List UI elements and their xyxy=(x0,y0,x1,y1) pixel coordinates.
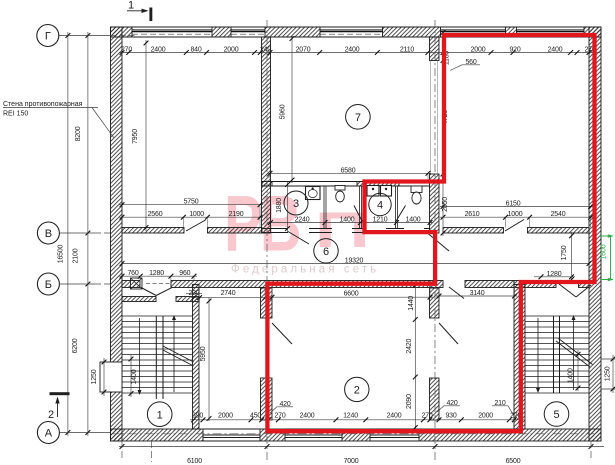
svg-text:2400: 2400 xyxy=(151,47,166,54)
svg-text:2090: 2090 xyxy=(406,394,413,409)
svg-text:2400: 2400 xyxy=(387,413,402,420)
svg-text:2100: 2100 xyxy=(72,248,79,263)
svg-text:560: 560 xyxy=(465,59,476,66)
svg-text:А: А xyxy=(45,428,53,440)
svg-text:2190: 2190 xyxy=(229,211,244,218)
svg-text:1280: 1280 xyxy=(149,270,164,277)
svg-text:2000: 2000 xyxy=(224,47,239,54)
svg-text:5960: 5960 xyxy=(280,104,287,119)
svg-text:3140: 3140 xyxy=(470,290,485,297)
svg-text:2110: 2110 xyxy=(400,47,415,54)
svg-text:2560: 2560 xyxy=(148,211,163,218)
svg-text:7000: 7000 xyxy=(344,458,359,465)
svg-text:2000: 2000 xyxy=(471,47,486,54)
svg-text:5: 5 xyxy=(553,409,559,421)
svg-text:2610: 2610 xyxy=(465,211,480,218)
svg-text:5950: 5950 xyxy=(200,346,207,361)
svg-text:960: 960 xyxy=(179,270,190,277)
svg-text:2000: 2000 xyxy=(478,413,493,420)
svg-text:450: 450 xyxy=(250,413,261,420)
svg-text:4: 4 xyxy=(377,200,383,212)
svg-text:2400: 2400 xyxy=(345,47,360,54)
svg-text:1000: 1000 xyxy=(508,211,523,218)
svg-text:В: В xyxy=(45,228,52,240)
svg-text:Г: Г xyxy=(45,31,51,43)
svg-text:1440: 1440 xyxy=(408,296,415,311)
svg-text:1250: 1250 xyxy=(91,369,98,384)
svg-text:1250: 1250 xyxy=(605,366,612,381)
svg-text:6200: 6200 xyxy=(72,338,79,353)
svg-text:7: 7 xyxy=(355,112,361,124)
svg-text:19320: 19320 xyxy=(345,258,364,265)
svg-text:8200: 8200 xyxy=(75,126,82,141)
svg-text:420: 420 xyxy=(279,401,290,408)
svg-text:2050: 2050 xyxy=(442,197,449,212)
svg-text:REI 150: REI 150 xyxy=(3,111,28,118)
svg-text:230: 230 xyxy=(188,290,199,297)
svg-text:1280: 1280 xyxy=(547,271,562,278)
svg-text:Федеральная сеть: Федеральная сеть xyxy=(231,264,379,276)
svg-text:240: 240 xyxy=(260,47,271,54)
svg-text:Б: Б xyxy=(45,279,52,291)
svg-text:Стена противопожарная: Стена противопожарная xyxy=(3,101,83,108)
svg-text:930: 930 xyxy=(445,413,456,420)
svg-text:1400: 1400 xyxy=(131,369,138,384)
svg-text:920: 920 xyxy=(509,47,520,54)
svg-text:1400: 1400 xyxy=(340,217,355,224)
svg-text:6500: 6500 xyxy=(506,458,521,465)
svg-text:1400: 1400 xyxy=(567,368,574,383)
svg-text:270: 270 xyxy=(274,413,285,420)
svg-text:5750: 5750 xyxy=(184,199,199,206)
svg-text:2: 2 xyxy=(48,409,54,421)
svg-text:1750: 1750 xyxy=(561,245,568,260)
svg-text:2740: 2740 xyxy=(221,290,236,297)
svg-text:420: 420 xyxy=(446,400,457,407)
svg-text:6: 6 xyxy=(323,246,329,258)
svg-text:6150: 6150 xyxy=(506,201,521,208)
svg-text:2: 2 xyxy=(354,384,360,396)
svg-text:1210: 1210 xyxy=(373,217,388,224)
svg-text:1: 1 xyxy=(157,409,163,421)
svg-text:1400: 1400 xyxy=(406,217,421,224)
svg-text:2240: 2240 xyxy=(295,217,310,224)
svg-text:3: 3 xyxy=(293,198,299,210)
svg-text:1600: 1600 xyxy=(601,244,608,259)
svg-text:1880: 1880 xyxy=(276,198,283,213)
svg-text:270: 270 xyxy=(421,413,432,420)
svg-text:210: 210 xyxy=(494,400,505,407)
svg-text:760: 760 xyxy=(127,270,138,277)
svg-text:1: 1 xyxy=(128,0,134,12)
svg-text:7950: 7950 xyxy=(132,129,139,144)
svg-text:6100: 6100 xyxy=(187,458,202,465)
svg-text:2420: 2420 xyxy=(406,339,413,354)
svg-text:2000: 2000 xyxy=(218,413,233,420)
svg-text:6580: 6580 xyxy=(341,167,356,174)
svg-text:2070: 2070 xyxy=(296,47,311,54)
svg-text:6600: 6600 xyxy=(344,291,359,298)
svg-text:390: 390 xyxy=(192,413,203,420)
svg-text:16500: 16500 xyxy=(58,244,65,263)
svg-text:2540: 2540 xyxy=(551,211,566,218)
svg-text:1240: 1240 xyxy=(343,413,358,420)
svg-text:840: 840 xyxy=(190,47,201,54)
svg-text:1000: 1000 xyxy=(189,211,204,218)
svg-text:2400: 2400 xyxy=(300,413,315,420)
svg-text:2400: 2400 xyxy=(548,47,563,54)
svg-text:270: 270 xyxy=(121,47,132,54)
